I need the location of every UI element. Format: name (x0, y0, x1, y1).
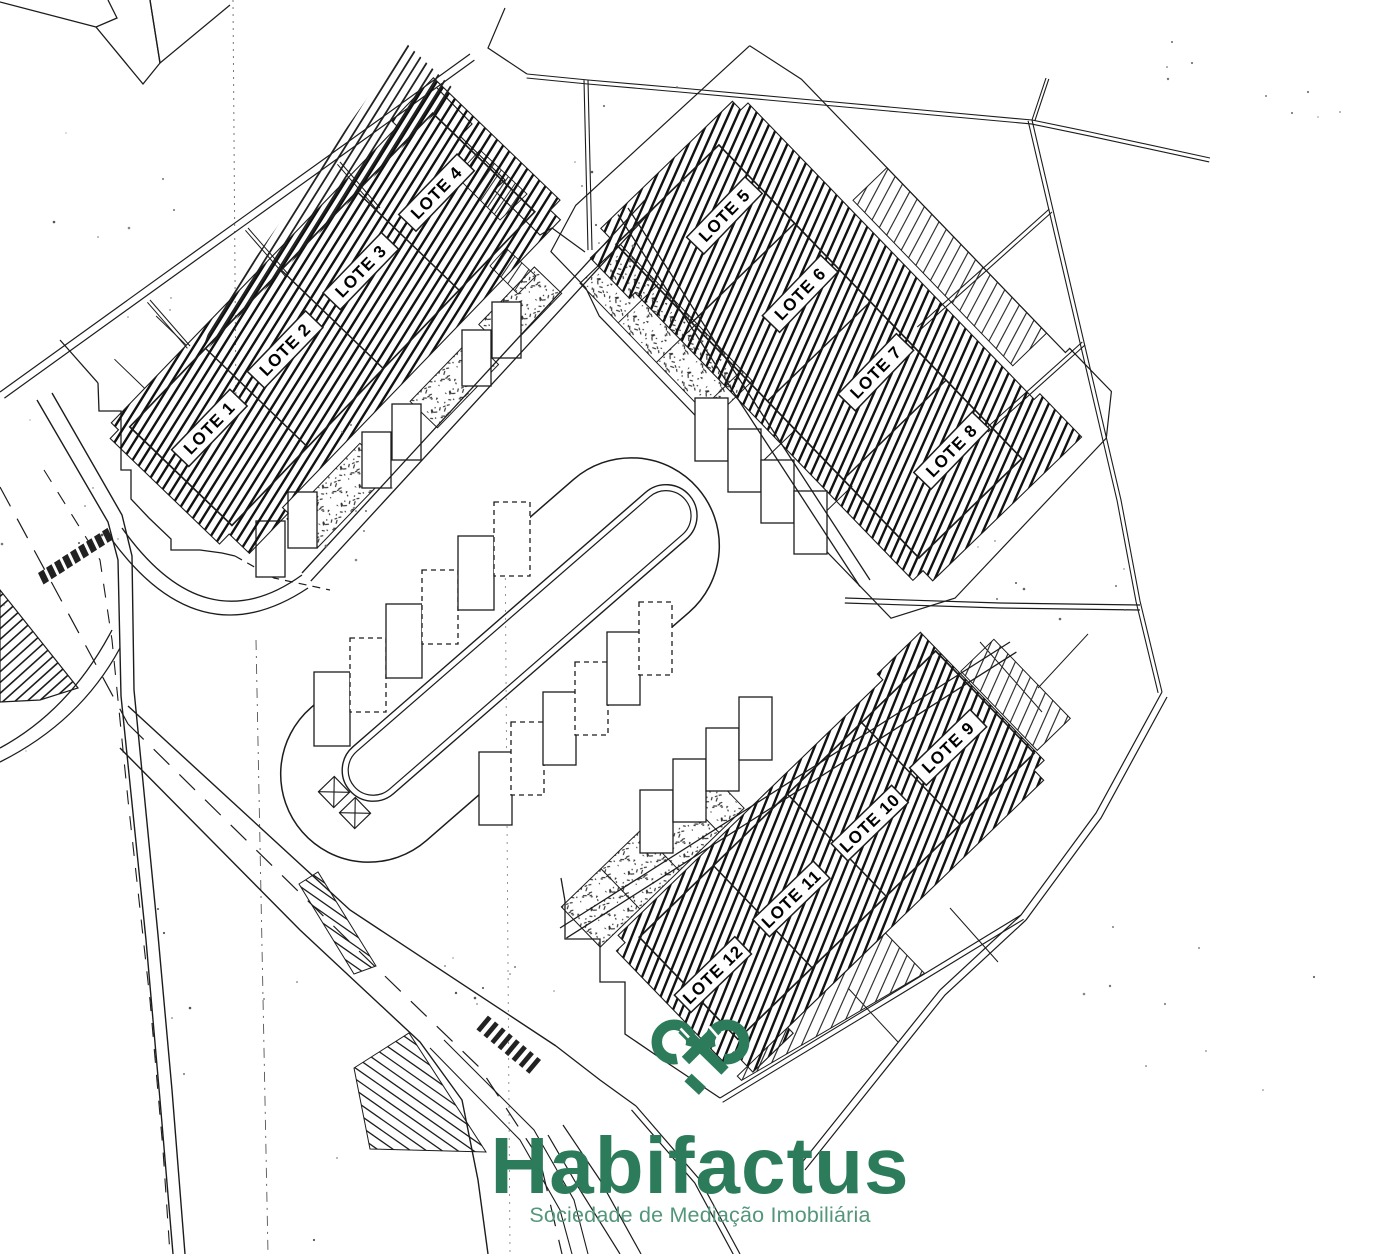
svg-text:Sociedade de Mediação Imobiliá: Sociedade de Mediação Imobiliária (529, 1203, 870, 1227)
svg-text:Habifactus: Habifactus (491, 1121, 910, 1210)
